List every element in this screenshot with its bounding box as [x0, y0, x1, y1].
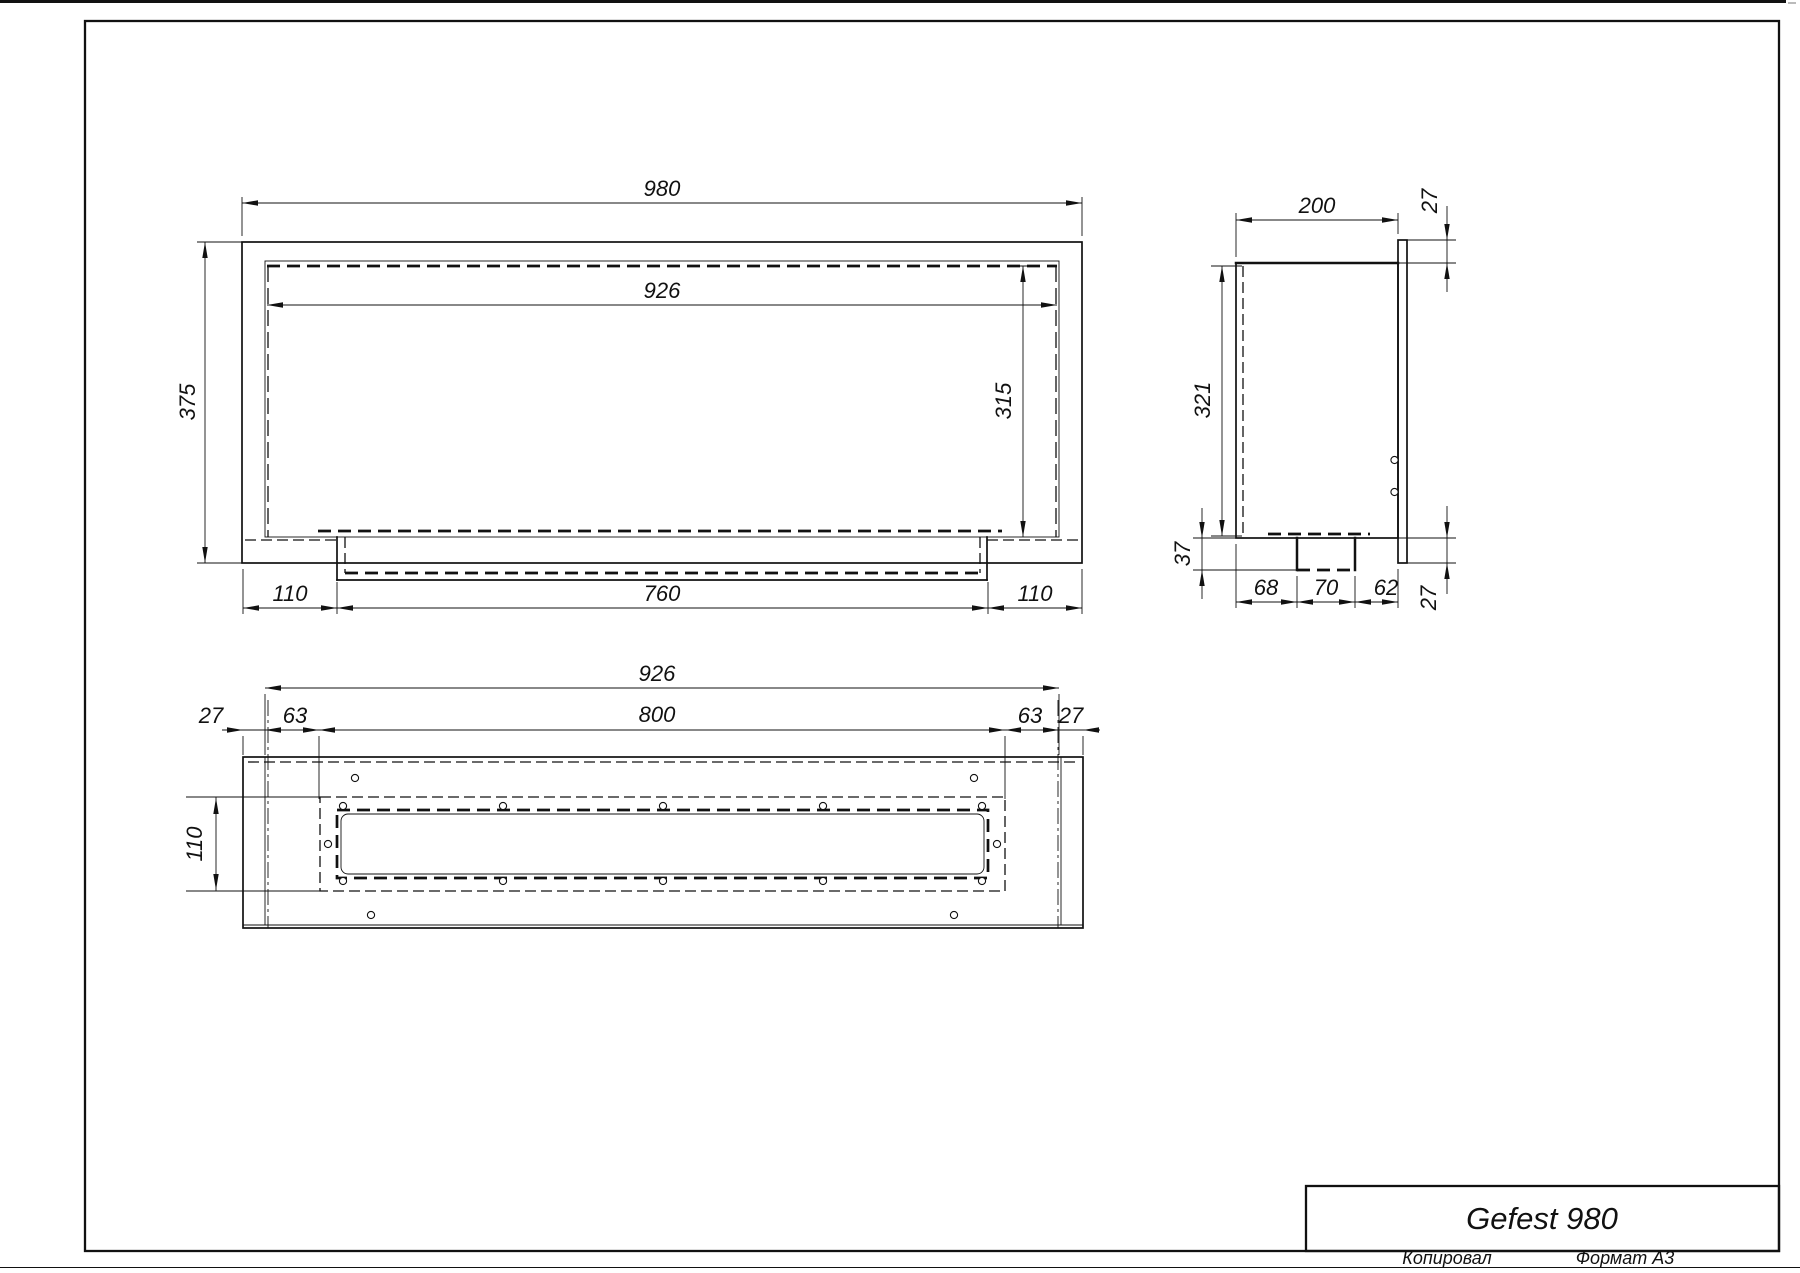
- front-dim-height-outer: 375: [175, 242, 242, 563]
- side-flange-hole-top: [1391, 456, 1398, 463]
- footer-format-label: Формат А3: [1576, 1248, 1675, 1268]
- front-dim-760-label: 760: [644, 581, 681, 606]
- side-dim-27-bottom-label: 27: [1416, 585, 1441, 611]
- front-dim-110-right-label: 110: [1017, 581, 1053, 606]
- front-view: 980 926 375 315: [175, 176, 1082, 614]
- side-burner-tray: [1297, 538, 1355, 570]
- footer-copied-label: Копировал: [1402, 1248, 1492, 1268]
- side-dim-depth: 200: [1236, 193, 1398, 257]
- front-dim-110-left-label: 110: [272, 581, 308, 606]
- sheet-border: [0, 0, 1800, 1268]
- bottom-dim-63-left-label: 63: [283, 703, 308, 728]
- bottom-dim-800-label: 800: [639, 702, 676, 727]
- side-dim-62-label: 62: [1374, 575, 1398, 600]
- bottom-burner-slot-hidden: [337, 810, 988, 878]
- side-dim-height: 321: [1190, 266, 1242, 536]
- front-burner-tray: [337, 537, 987, 580]
- bottom-burner-slot: [341, 814, 984, 874]
- bottom-dim-row: 27 63 800 63 27: [198, 702, 1100, 799]
- bottom-dim-slot-width: 110: [182, 797, 322, 891]
- side-dim-321-label: 321: [1190, 382, 1215, 419]
- drawing-sheet: 980 926 375 315: [0, 0, 1800, 1273]
- front-dim-375-label: 375: [175, 383, 200, 420]
- front-dim-width-opening: 926: [267, 278, 1057, 308]
- front-dim-980-label: 980: [644, 176, 681, 201]
- bottom-dim-27-right-label: 27: [1058, 703, 1084, 728]
- front-dim-315-label: 315: [991, 382, 1016, 419]
- bottom-plate-holes: [351, 774, 977, 918]
- side-dim-bottom-row: 68 70 62: [1236, 544, 1398, 608]
- top-edge-artifact: [1788, 2, 1796, 4]
- bottom-dim-63-right-label: 63: [1018, 703, 1043, 728]
- front-dim-tray-row: 110 760 110: [243, 569, 1082, 614]
- side-dim-70-label: 70: [1314, 575, 1339, 600]
- title-block-model: Gefest 980: [1466, 1201, 1618, 1236]
- side-flange-hole-bottom: [1391, 488, 1398, 495]
- top-edge-strip: [0, 0, 1786, 3]
- side-body: [1236, 263, 1398, 538]
- side-dim-68-label: 68: [1254, 575, 1279, 600]
- front-dim-width-outer: 980: [242, 176, 1082, 236]
- bottom-dim-926-label: 926: [639, 661, 676, 686]
- side-mount-flange: [1398, 240, 1407, 563]
- bottom-dim-110-label: 110: [182, 826, 207, 862]
- bottom-dim-27-left-label: 27: [198, 703, 224, 728]
- side-view: 200 27 321 37: [1170, 188, 1456, 611]
- bottom-slot-holes: [324, 802, 1000, 884]
- front-dim-926-label: 926: [644, 278, 681, 303]
- bottom-plate: [243, 757, 1083, 928]
- bottom-view: 926 27 63 800 63 27: [182, 661, 1100, 928]
- front-dim-height-opening: 315: [991, 266, 1040, 537]
- side-dim-200-label: 200: [1298, 193, 1336, 218]
- side-dim-37-label: 37: [1170, 541, 1195, 566]
- title-block: Gefest 980: [1306, 1186, 1779, 1251]
- side-dim-27-top-label: 27: [1417, 188, 1442, 214]
- drawing-frame: [85, 21, 1779, 1251]
